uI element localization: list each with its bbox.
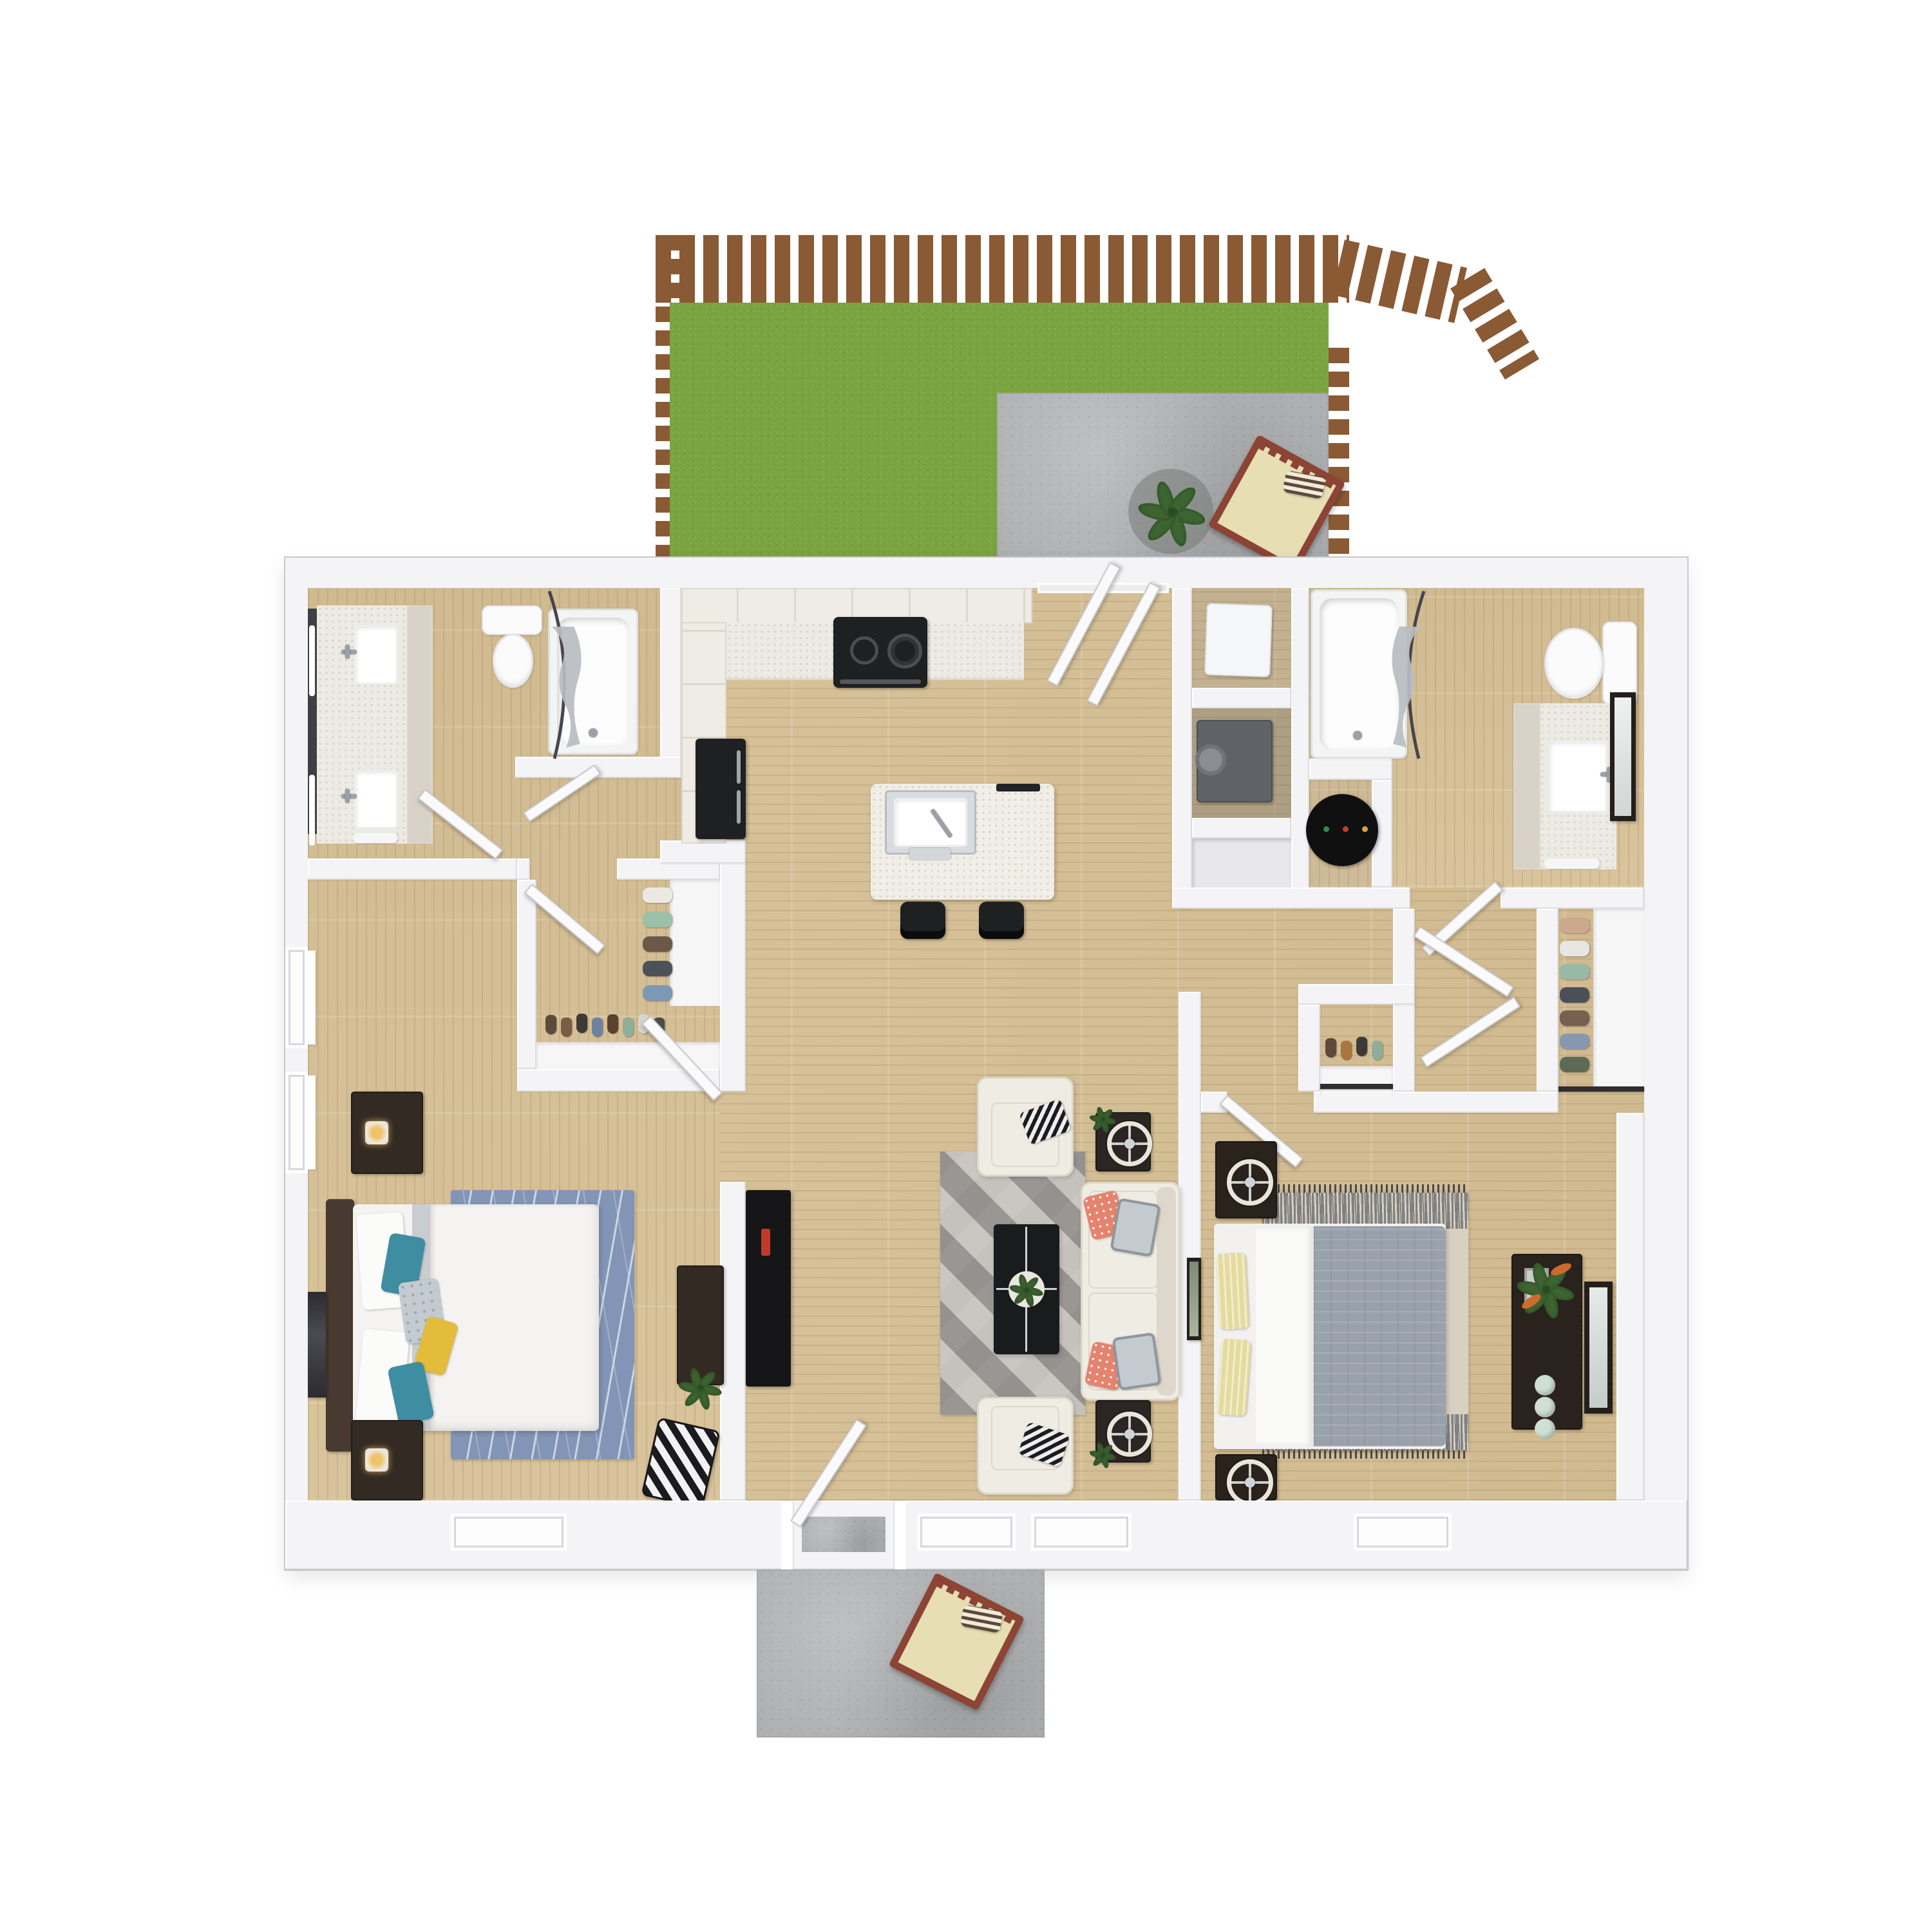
butter-pillow <box>1216 1253 1249 1330</box>
hallway <box>1201 909 1644 1092</box>
hanging-clothes <box>1560 964 1589 980</box>
armchair <box>977 1077 1074 1177</box>
decor-jar <box>1535 1419 1555 1439</box>
vanity-decor <box>1544 858 1600 869</box>
tub-faucet <box>589 728 598 737</box>
decor-jar <box>1535 1397 1555 1417</box>
refrigerator <box>696 739 746 839</box>
butter-pillow <box>1217 1339 1251 1417</box>
nightstand <box>1215 1141 1277 1218</box>
bedroom-1 <box>308 880 720 1501</box>
game-console <box>761 1229 770 1256</box>
leaning-mirror <box>1584 1282 1613 1414</box>
sofa-pillow-gray <box>1112 1332 1162 1390</box>
armchair <box>977 1397 1074 1495</box>
side-table-plant <box>1090 1106 1116 1132</box>
shower-curtain <box>530 588 588 762</box>
kitchen <box>681 588 1172 949</box>
fridge-handles <box>737 750 741 784</box>
vanity-sink <box>1548 741 1607 813</box>
gray-comforter <box>1314 1226 1446 1446</box>
island-sink <box>894 798 967 847</box>
wall <box>1291 588 1309 909</box>
sofa <box>1081 1182 1180 1401</box>
burner <box>850 636 878 665</box>
wall <box>1179 992 1201 1501</box>
hanging-clothes <box>1560 987 1589 1003</box>
porch-chair-pillow <box>960 1604 1003 1633</box>
bathroom-1 <box>308 588 681 880</box>
laundry-closet <box>1192 588 1291 909</box>
nightstand <box>351 1420 423 1501</box>
tub-faucet <box>1353 731 1362 740</box>
wall <box>720 1182 746 1501</box>
mirror-glass <box>1615 697 1631 816</box>
sheet-fold <box>1256 1226 1314 1446</box>
range-handle <box>840 679 921 684</box>
yard-fence-top <box>656 235 1349 303</box>
toilet-bowl <box>493 634 533 688</box>
saucer <box>1009 1271 1045 1307</box>
hanging-clothes <box>1560 941 1589 956</box>
bedroom1-window <box>451 1513 567 1551</box>
wall-art <box>1187 1258 1201 1340</box>
closet-double-door <box>1420 996 1520 1068</box>
yard-chair-pillow <box>1282 470 1325 499</box>
kitchen-island <box>871 784 1054 900</box>
shoes <box>1341 1041 1352 1060</box>
vanity-decor-bottles <box>353 833 398 843</box>
burner <box>887 634 922 668</box>
duvet <box>430 1204 599 1431</box>
island-soap-tray <box>909 848 951 860</box>
shoes <box>1325 1038 1336 1057</box>
mirror-light <box>309 625 315 696</box>
art-canvas <box>1189 1262 1198 1336</box>
bathroom-2 <box>1309 588 1644 887</box>
shoes <box>1372 1041 1383 1060</box>
entry-door-frame <box>895 1501 906 1569</box>
wall-art <box>308 1292 326 1397</box>
table-lamp <box>365 1448 388 1472</box>
floor-plan-canvas <box>0 0 1932 1932</box>
sofa-pillow-gray <box>1110 1198 1160 1257</box>
hanging-clothes <box>1560 1010 1589 1026</box>
dresser-frame-decor <box>1524 1268 1549 1302</box>
faucet <box>345 789 350 803</box>
yard-gate-swing-panel <box>1450 268 1539 379</box>
island-tray <box>996 784 1040 791</box>
living-window <box>1031 1513 1132 1551</box>
dryer <box>1197 720 1273 802</box>
dresser <box>1511 1254 1582 1430</box>
shoes <box>1356 1037 1367 1056</box>
closet-low-shelf <box>1320 1066 1393 1097</box>
patio-plant-mat <box>1128 469 1213 554</box>
headboard <box>326 1199 354 1452</box>
wall <box>1172 588 1192 909</box>
entry-threshold <box>802 1517 885 1552</box>
entry-door-frame <box>781 1501 793 1569</box>
side-table <box>1095 1112 1151 1171</box>
living-room <box>746 909 1179 1501</box>
yard-fence-right <box>1327 348 1349 558</box>
mirror-glass <box>1589 1287 1607 1408</box>
mirror-light <box>309 775 315 846</box>
dresser <box>677 1265 724 1385</box>
bedroom1-side-window <box>285 947 308 1048</box>
range <box>833 617 927 688</box>
leaning-mirror <box>1610 692 1636 821</box>
vanity-sink <box>354 625 398 685</box>
sofa-back <box>1157 1187 1176 1396</box>
round-lamp <box>1107 1121 1152 1166</box>
toilet-bowl <box>1544 628 1604 699</box>
table-lamp <box>365 1121 388 1144</box>
round-lamp <box>1227 1459 1273 1506</box>
living-window <box>917 1513 1016 1551</box>
wall <box>1616 1113 1644 1501</box>
yard-gate-open-panel <box>1332 240 1467 323</box>
round-lamp <box>1107 1412 1152 1457</box>
hanging-clothes <box>1560 1034 1589 1049</box>
dryer-door <box>1195 744 1226 775</box>
decor-jar <box>1535 1375 1555 1396</box>
storage-niche <box>1192 838 1291 887</box>
nightstand <box>351 1092 423 1174</box>
round-lamp <box>1227 1159 1273 1206</box>
bedroom-2 <box>1201 1113 1616 1501</box>
faucet <box>345 645 350 659</box>
hanging-clothes <box>1560 918 1589 933</box>
closet-double-door <box>1414 926 1514 998</box>
window-sill <box>308 951 316 1045</box>
hanging-clothes <box>1560 1057 1589 1072</box>
chevron-floor-pillow <box>641 1417 720 1510</box>
nightstand <box>1215 1454 1277 1501</box>
fridge-handles <box>737 790 741 824</box>
side-table <box>1095 1400 1151 1463</box>
vanity-drawers <box>1513 703 1540 869</box>
shower-curtain <box>1385 588 1443 762</box>
linen-closet-panel <box>1593 909 1644 1088</box>
closet-sliding-rail <box>1558 1086 1644 1092</box>
washer <box>1204 603 1273 677</box>
vanity-sink <box>354 770 398 829</box>
window-sill <box>308 1075 316 1170</box>
wall <box>1501 887 1644 909</box>
yard <box>656 227 1493 568</box>
bedroom1-side-window <box>285 1072 308 1173</box>
closet-rail <box>1320 1084 1393 1089</box>
tv-console <box>746 1190 791 1387</box>
bedroom2-window <box>1354 1513 1452 1551</box>
coffee-table <box>994 1224 1059 1354</box>
